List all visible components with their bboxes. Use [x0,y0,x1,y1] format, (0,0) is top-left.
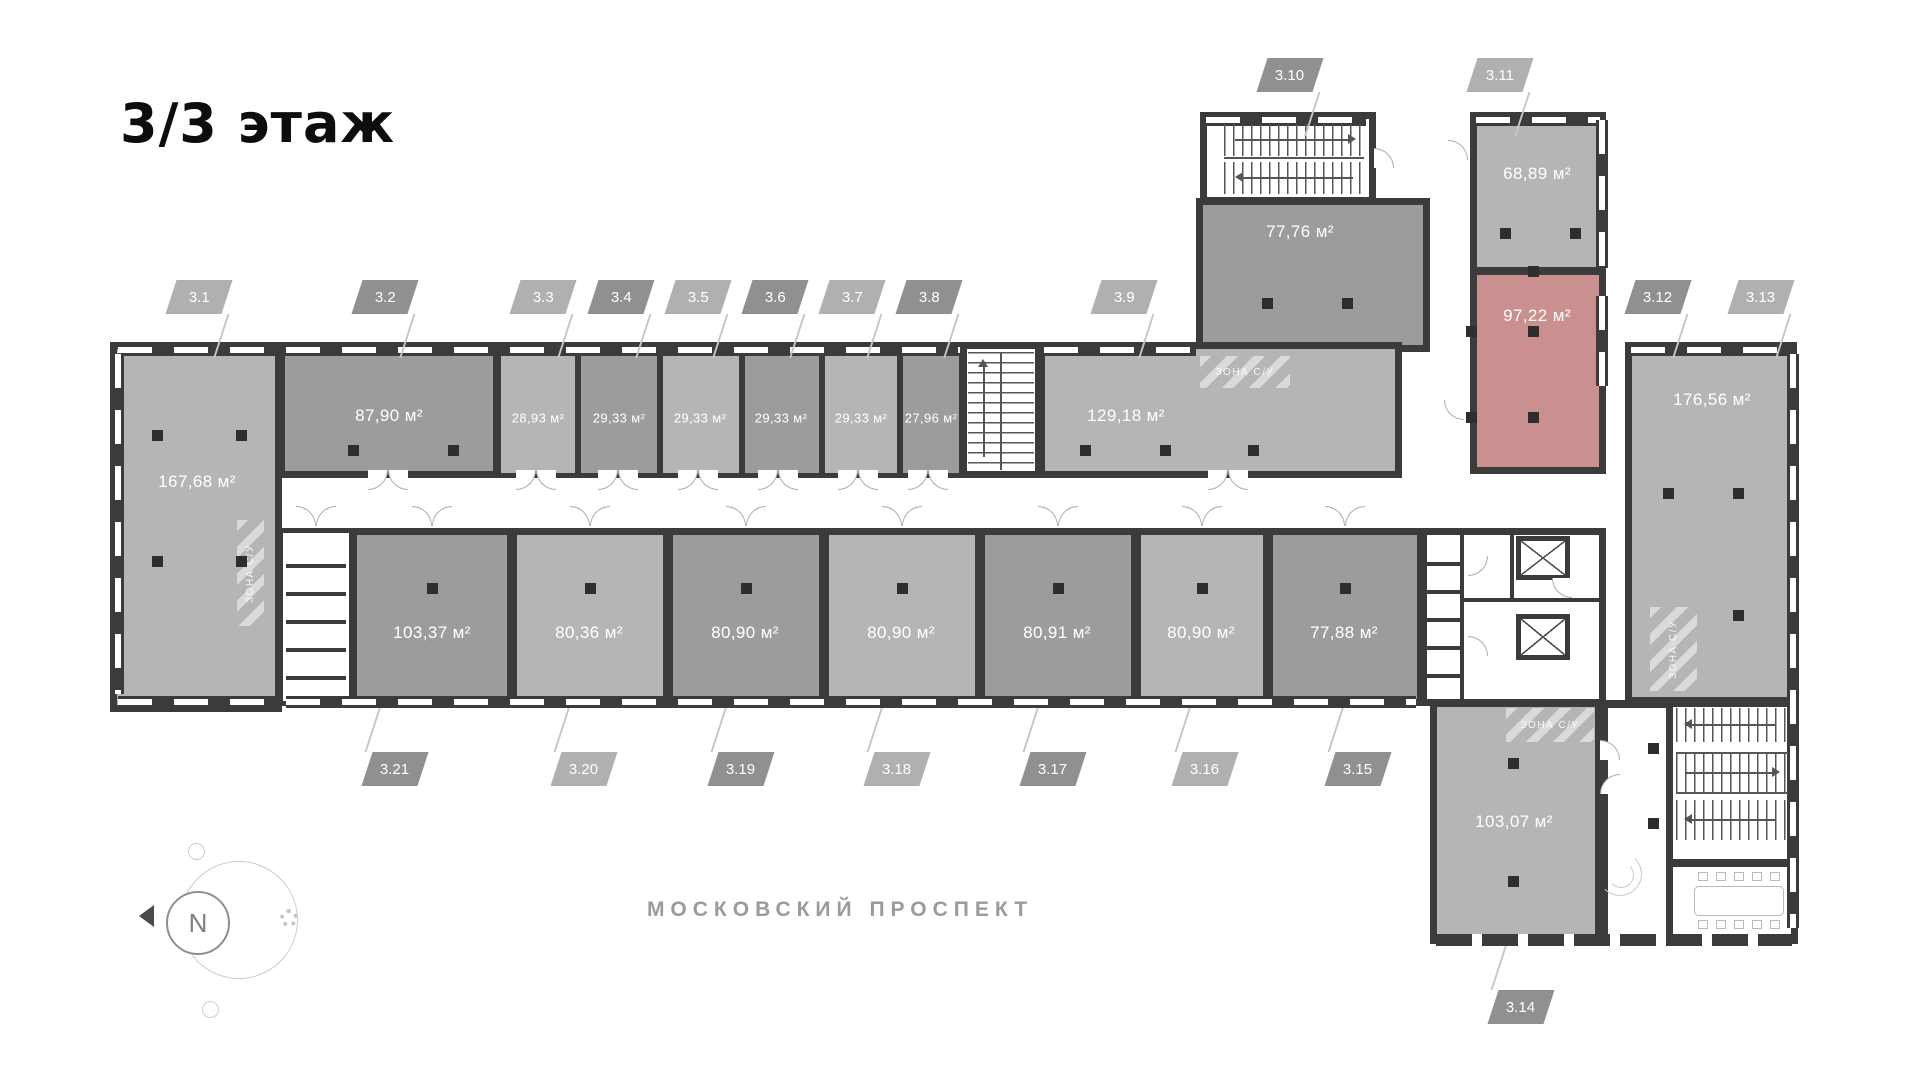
column [427,583,438,594]
tag-3.7[interactable]: 3.7 [818,280,885,314]
north-circle: N [166,891,230,955]
tag-3.15[interactable]: 3.15 [1324,752,1391,786]
window-wall [112,354,124,694]
column [152,430,163,441]
sanitary-zone: ЗОНА С/У [1650,607,1697,691]
room-3.20[interactable] [510,528,670,706]
column [897,583,908,594]
tag-3.19[interactable]: 3.19 [707,752,774,786]
area-label: 77,88 м² [1310,623,1378,643]
double-door [1208,470,1250,490]
area-label: 77,76 м² [1266,222,1334,242]
stair-treads [1224,162,1364,194]
chair [1716,920,1726,929]
tag-3.3[interactable]: 3.3 [509,280,576,314]
wall [1602,700,1608,944]
double-door [568,506,610,526]
door [1600,740,1620,760]
room-3.12-highlighted[interactable] [1470,268,1606,474]
column [236,556,247,567]
area-label: 80,90 м² [711,623,779,643]
column [1508,758,1519,769]
area-label: 29,33 м² [674,411,727,426]
column [236,430,247,441]
column [1500,228,1511,239]
window-wall [1044,344,1196,356]
area-label: 80,91 м² [1023,623,1091,643]
column [348,445,359,456]
double-door [1180,506,1222,526]
tag-3.12[interactable]: 3.12 [1624,280,1691,314]
window-wall [1436,934,1792,946]
stair-treads [1676,752,1788,794]
column [152,556,163,567]
chair [1698,920,1708,929]
tag-3.16[interactable]: 3.16 [1171,752,1238,786]
tag-3.18[interactable]: 3.18 [863,752,930,786]
sanitary-zone: ЗОНА С/У [1200,356,1290,388]
double-door [1036,506,1078,526]
tag-3.1[interactable]: 3.1 [165,280,232,314]
area-label: 29,33 м² [755,411,808,426]
sanitary-zone: ЗОНА С/У [1506,708,1594,742]
column [1508,876,1519,887]
stair-divider [1224,157,1364,159]
area-label: 28,93 м² [512,411,565,426]
room-3.21[interactable] [350,528,514,706]
wall [1602,700,1672,708]
tag-3.9[interactable]: 3.9 [1090,280,1157,314]
chair [1770,872,1780,881]
wall [1460,598,1602,602]
stair-treads [968,352,1034,470]
tag-3.21[interactable]: 3.21 [361,752,428,786]
compass-small-circle [202,1001,219,1018]
north-letter: N [189,908,208,939]
door [1448,140,1468,160]
street-label: МОСКОВСКИЙ ПРОСПЕКТ [610,898,1070,922]
room-3.15[interactable] [1266,528,1424,706]
floor-plan: ЗОНА С/У ЗОНА С/У ЗОНА С/У ЗОНА С/У [0,0,1920,1080]
compass-small-circle [188,843,205,860]
tag-3.6[interactable]: 3.6 [741,280,808,314]
tag-3.11[interactable]: 3.11 [1466,58,1533,92]
column [1648,743,1659,754]
window-wall [286,696,1416,708]
wc-stalls [286,540,346,698]
compass-west-arrow-icon [128,905,154,927]
area-label: 68,89 м² [1503,164,1571,184]
window-wall [118,696,276,708]
area-label: 80,36 м² [555,623,623,643]
chair [1734,920,1744,929]
area-label: 29,33 м² [593,411,646,426]
conference-table [1694,886,1784,916]
area-label: 176,56 м² [1673,390,1751,410]
area-label: 80,90 м² [1167,623,1235,643]
stair-treads [1676,708,1788,742]
chair [1770,920,1780,929]
elevator [1516,614,1570,660]
column [1197,583,1208,594]
double-door [724,506,766,526]
column [1466,326,1477,337]
double-door [368,470,410,490]
column [1466,412,1477,423]
elevator [1516,536,1570,580]
gear-icon [280,909,298,927]
column [1528,326,1539,337]
chair [1698,872,1708,881]
column [585,583,596,594]
area-label: 129,18 м² [1087,406,1165,426]
double-door [294,506,336,526]
column [1528,266,1539,277]
stair-treads [1224,124,1364,156]
tag-3.14[interactable]: 3.14 [1487,990,1554,1024]
area-label: 97,22 м² [1503,306,1571,326]
room-3.17[interactable] [978,528,1138,706]
door [1374,148,1394,168]
area-label: 167,68 м² [158,472,236,492]
area-label: 87,90 м² [355,406,423,426]
tag-3.20[interactable]: 3.20 [550,752,617,786]
double-door [838,470,880,490]
tag-3.13[interactable]: 3.13 [1727,280,1794,314]
double-door [880,506,922,526]
column [1340,583,1351,594]
room-3.16[interactable] [1134,528,1270,706]
double-door [598,470,640,490]
column [1080,445,1091,456]
area-label: 27,96 м² [905,411,958,426]
column [1342,298,1353,309]
room-3.19[interactable] [666,528,826,706]
window-wall [1787,354,1799,928]
column [448,445,459,456]
door [1444,400,1464,420]
area-label: 103,07 м² [1475,812,1553,832]
tag-3.4[interactable]: 3.4 [587,280,654,314]
curved-desk [1608,862,1634,888]
area-label: 29,33 м² [835,411,888,426]
column [1733,488,1744,499]
tag-3.17[interactable]: 3.17 [1019,752,1086,786]
tag-3.10[interactable]: 3.10 [1256,58,1323,92]
window-wall [1631,344,1791,356]
window-wall [1476,114,1600,126]
chair [1752,872,1762,881]
stair-treads [1676,800,1788,840]
column [1528,412,1539,423]
column [1733,610,1744,621]
column [1053,583,1064,594]
window-wall [1596,296,1608,386]
column [1262,298,1273,309]
area-label: 80,90 м² [867,623,935,643]
room-3.18[interactable] [822,528,982,706]
page-title: 3/3 этаж [120,92,395,155]
column [1248,445,1259,456]
chair [1716,872,1726,881]
chair [1752,920,1762,929]
column [1160,445,1171,456]
double-door [908,470,950,490]
tag-3.5[interactable]: 3.5 [664,280,731,314]
tag-3.8[interactable]: 3.8 [895,280,962,314]
column [1648,818,1659,829]
chair [1734,872,1744,881]
double-door [410,506,452,526]
window-wall [1596,120,1608,268]
sanitary-zone: ЗОНА С/У [237,520,264,626]
column [741,583,752,594]
double-door [678,470,720,490]
area-label: 103,37 м² [393,623,471,643]
double-door [1323,506,1365,526]
double-door [758,470,800,490]
tag-3.2[interactable]: 3.2 [351,280,418,314]
wc-stalls [1426,538,1460,700]
wall [1510,534,1514,600]
room-3.11[interactable] [1470,112,1606,274]
compass: N [128,843,338,1038]
double-door [516,470,558,490]
column [1663,488,1674,499]
wall [1460,534,1464,702]
column [1570,228,1581,239]
window-wall [118,344,960,356]
